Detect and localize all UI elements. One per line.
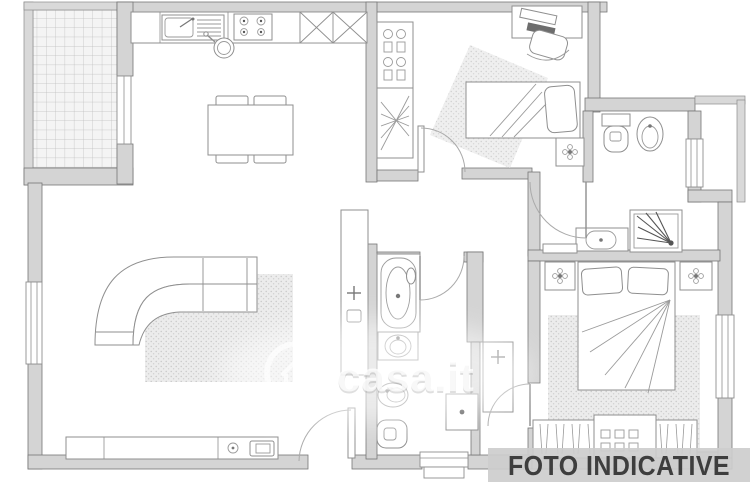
hallway-bench: [543, 244, 577, 253]
sideboard: [66, 437, 278, 459]
nightstand: [556, 138, 584, 166]
living-room-window: [26, 282, 42, 364]
shower: [630, 210, 682, 252]
washbasin: [576, 228, 628, 251]
balcony-tiled-floor: [33, 10, 117, 168]
balcony-door-window: [117, 76, 131, 144]
double-bed: [578, 262, 675, 393]
banner-text: FOTO INDICATIVE: [508, 450, 730, 481]
bidet: [637, 117, 663, 151]
dining-table: [208, 105, 293, 155]
nightstand: [680, 262, 712, 290]
floor-plan-image: casa.it casa.it FOTO INDICATIVE: [0, 0, 750, 482]
watermark: casa.it casa.it: [220, 320, 530, 424]
kitchen-cabinets: [300, 12, 367, 43]
single-bed: [466, 82, 580, 138]
tv: [250, 441, 274, 456]
nightstand: [545, 262, 575, 290]
dining-area: [208, 96, 293, 163]
bathroom-2-window: [420, 452, 468, 478]
toilet: [377, 420, 407, 448]
bedroom-2-window: [716, 315, 734, 398]
bathroom-1-window: [686, 139, 703, 187]
toilet: [602, 114, 630, 152]
watermark-text: casa.it: [337, 353, 475, 400]
shelf-unit: [377, 22, 413, 158]
kitchen-sink: [162, 15, 224, 40]
balcony: [24, 2, 119, 185]
stove: [234, 14, 272, 40]
photo-indicative-banner: FOTO INDICATIVE: [488, 448, 750, 482]
